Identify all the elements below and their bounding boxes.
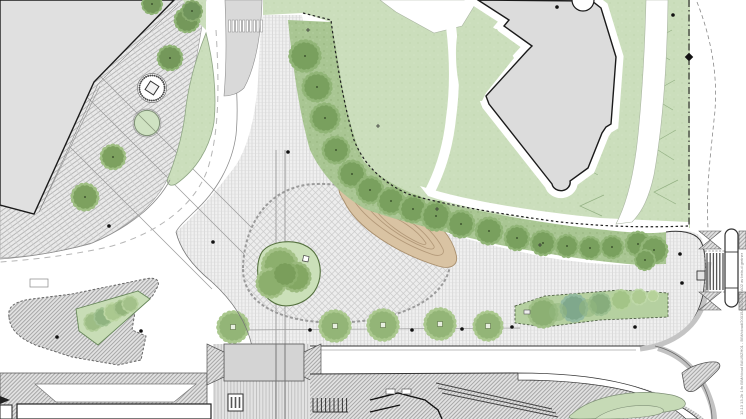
svg-text:12.13 13-2b 1:fn BIM/cloud BAU: 12.13 13-2b 1:fn BIM/cloud BAUBZH01 - BI…: [739, 252, 744, 415]
